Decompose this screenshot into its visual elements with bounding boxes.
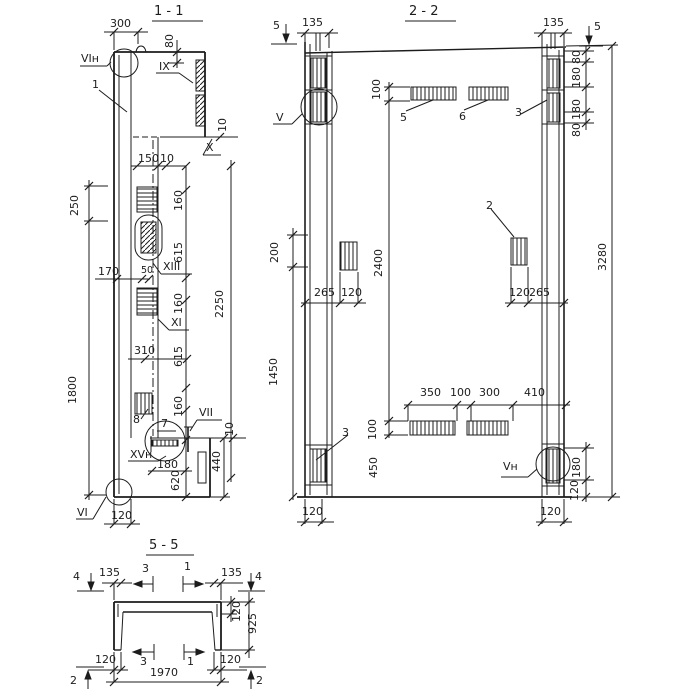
- dim-label: 265: [529, 287, 550, 298]
- detail-ref-label: VIн: [81, 53, 99, 64]
- dim-label: 2400: [373, 249, 384, 277]
- dim-label: 180: [157, 459, 178, 470]
- section-marker-label: 3: [140, 656, 147, 667]
- section-marker-label: 2: [256, 675, 263, 686]
- dim-label: 135: [543, 17, 564, 28]
- detail-ref-label: XIII: [163, 261, 180, 272]
- dim-label: 120: [569, 480, 580, 501]
- dim-label: 80: [571, 123, 582, 137]
- dim-label: 120: [111, 510, 132, 521]
- dim-label: 10: [160, 153, 174, 164]
- dim-label: 120: [509, 287, 530, 298]
- section-marker-label: 1: [184, 561, 191, 572]
- section-marker-label: 2: [70, 675, 77, 686]
- dim-label: 3280: [597, 243, 608, 271]
- dim-label: 265: [314, 287, 335, 298]
- part-ref-label: 6: [459, 111, 466, 122]
- detail-ref-label: IX: [159, 61, 170, 72]
- dim-label: 135: [221, 567, 242, 578]
- dim-label: 310: [134, 345, 155, 356]
- dim-label: 615: [173, 346, 184, 367]
- drawing-canvas: 1 - 130080VIн1IX10X150101606152250160615…: [0, 0, 700, 700]
- dim-label: 120: [220, 654, 241, 665]
- dim-label: 1450: [268, 358, 279, 386]
- part-ref-label: 3: [515, 107, 522, 118]
- dim-label: 80: [571, 50, 582, 64]
- dim-label: 135: [302, 17, 323, 28]
- section-title-1-1: 1 - 1: [154, 5, 184, 18]
- dim-label: 160: [173, 396, 184, 417]
- dim-label: 200: [269, 242, 280, 263]
- section-2-2-linework: [271, 21, 620, 526]
- dim-label: 10: [217, 118, 228, 132]
- dim-label: 50: [141, 266, 153, 276]
- section-marker-label: 5: [594, 21, 601, 32]
- dim-label: 350: [420, 387, 441, 398]
- dim-label: 120: [540, 506, 561, 517]
- detail-ref-label: VII: [199, 407, 213, 418]
- dim-label: 300: [110, 18, 131, 29]
- part-ref-label: 3: [342, 427, 349, 438]
- drawing-linework: [0, 0, 700, 700]
- detail-ref-label: Vн: [503, 461, 518, 472]
- dim-label: 10: [224, 422, 235, 436]
- dim-label: 450: [368, 457, 379, 478]
- detail-ref-label: X: [206, 142, 214, 153]
- dim-label: 180: [571, 67, 582, 88]
- dim-label: 120: [95, 654, 116, 665]
- dim-label: 120: [302, 506, 323, 517]
- dim-label: 100: [371, 79, 382, 100]
- dim-label: 620: [170, 470, 181, 491]
- dim-label: 170: [98, 266, 119, 277]
- dim-label: 80: [164, 34, 175, 48]
- dim-label: 100: [450, 387, 471, 398]
- detail-ref-label: XVн: [130, 449, 152, 460]
- section-title-2-2: 2 - 2: [409, 5, 439, 18]
- dim-label: 120: [341, 287, 362, 298]
- dim-label: 180: [571, 457, 582, 478]
- section-marker-label: 4: [73, 571, 80, 582]
- dim-label: 1970: [150, 667, 178, 678]
- section-marker-label: 3: [142, 563, 149, 574]
- dim-label: 410: [524, 387, 545, 398]
- dim-label: 300: [479, 387, 500, 398]
- dim-label: 160: [173, 190, 184, 211]
- section-marker-label: 5: [273, 20, 280, 31]
- section-marker-label: 4: [255, 571, 262, 582]
- section-title-5-5: 5 - 5: [149, 539, 179, 552]
- dim-label: 250: [69, 195, 80, 216]
- part-ref-label: 7: [161, 418, 168, 429]
- part-ref-label: 2: [486, 200, 493, 211]
- detail-ref-label: VI: [77, 507, 88, 518]
- dim-label: 925: [247, 613, 258, 634]
- dim-label: 100: [367, 419, 378, 440]
- detail-ref-label: V: [276, 112, 284, 123]
- dim-label: 135: [99, 567, 120, 578]
- dim-label: 150: [138, 153, 159, 164]
- dim-label: 2250: [214, 290, 225, 318]
- dim-label: 180: [571, 99, 582, 120]
- dim-label: 120: [231, 601, 242, 622]
- dim-label: 1800: [67, 376, 78, 404]
- part-ref-label: 5: [400, 112, 407, 123]
- part-ref-label: 1: [92, 79, 99, 90]
- dim-label: 440: [211, 451, 222, 472]
- detail-ref-label: XI: [171, 317, 182, 328]
- part-ref-label: 8: [133, 414, 140, 425]
- dim-label: 160: [173, 293, 184, 314]
- section-marker-label: 1: [187, 656, 194, 667]
